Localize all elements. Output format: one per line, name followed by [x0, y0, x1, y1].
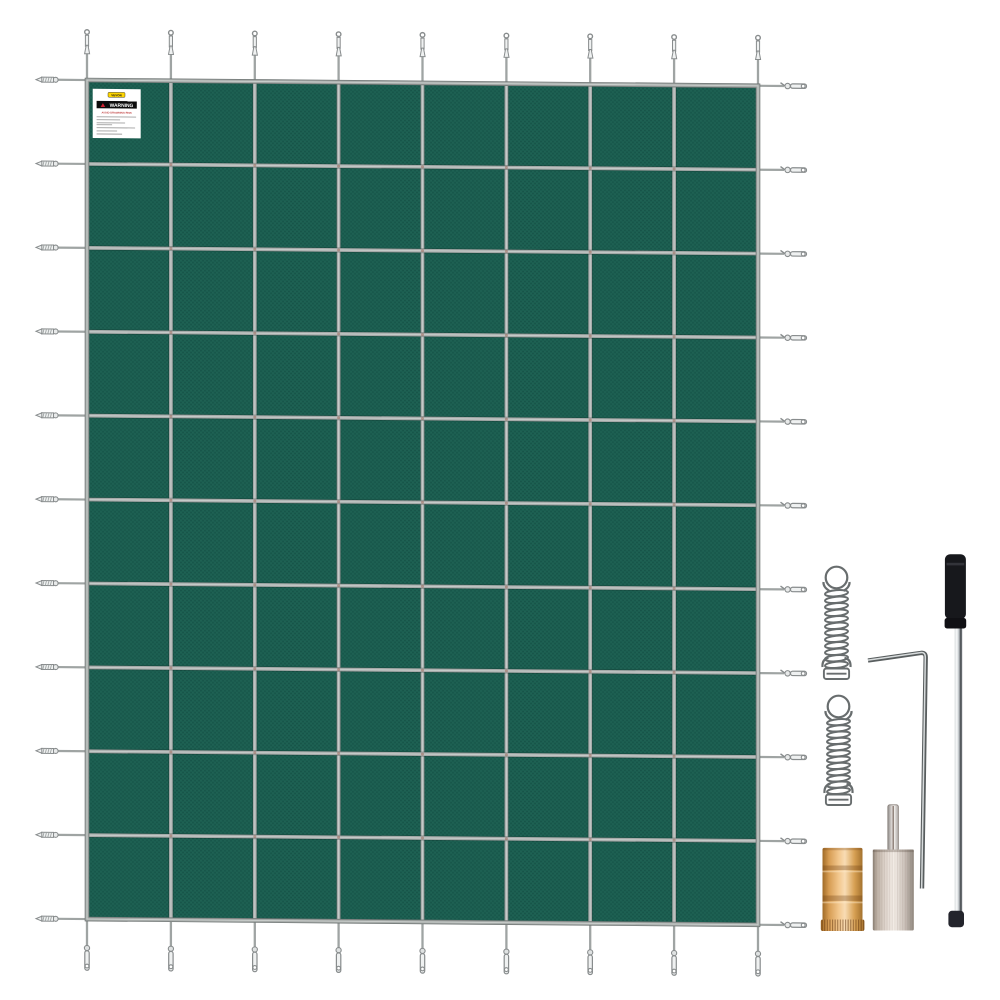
svg-text:WARNING: WARNING [110, 103, 134, 109]
svg-text:VEVOR: VEVOR [111, 93, 122, 97]
svg-text:AVOID DROWNING RISK: AVOID DROWNING RISK [102, 110, 132, 114]
